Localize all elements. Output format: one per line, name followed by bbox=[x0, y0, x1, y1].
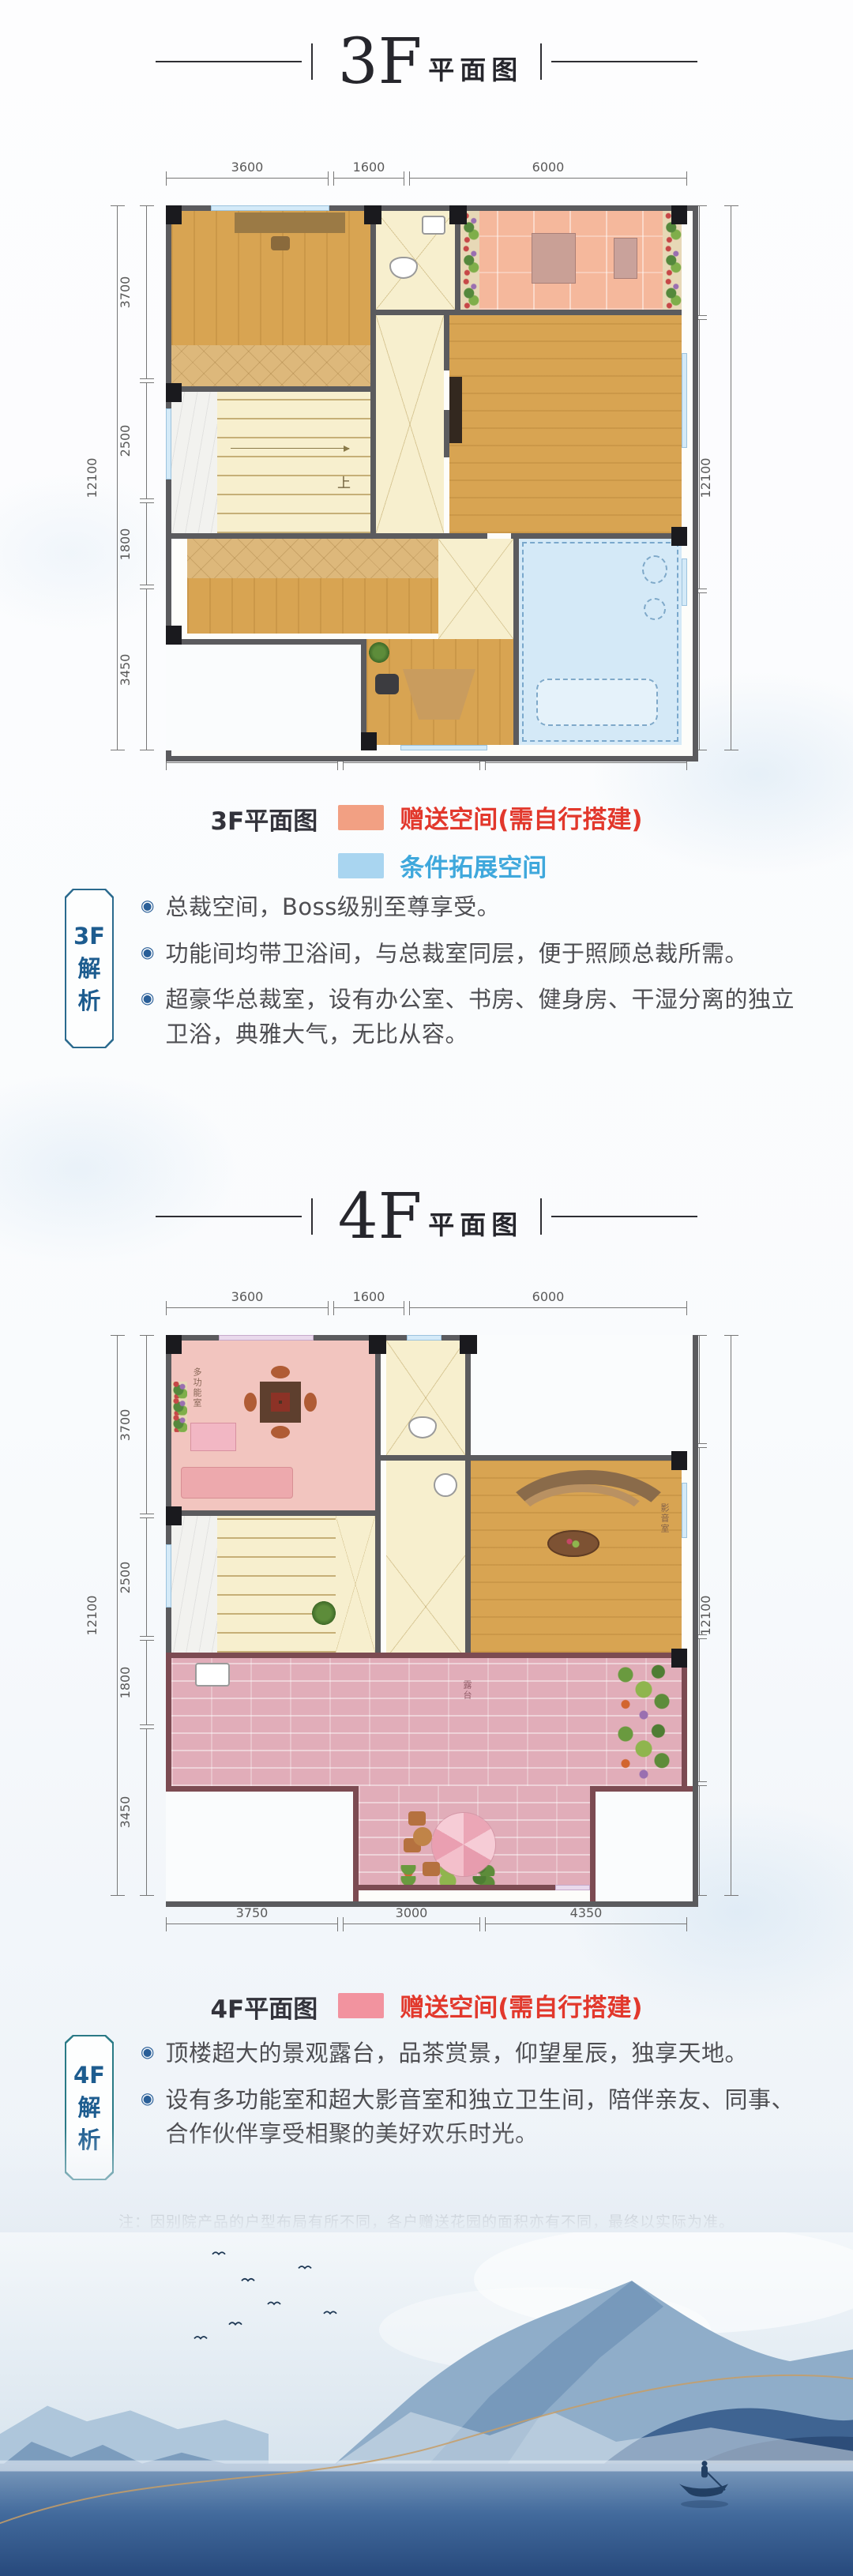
stair-landing-marble bbox=[171, 1516, 217, 1653]
wall bbox=[381, 1455, 465, 1461]
column bbox=[671, 527, 687, 546]
dim-top-6000: 6000 bbox=[409, 178, 687, 179]
page: 3F 平面图 3600 1600 6000 3750 3000 4350 370… bbox=[0, 0, 853, 2576]
room-master bbox=[449, 315, 682, 533]
floor4-title: 4F 平面图 bbox=[0, 1175, 853, 1258]
dim-top-1600: 1600 bbox=[333, 178, 404, 179]
wall bbox=[370, 211, 376, 392]
plant-icon bbox=[312, 1601, 336, 1625]
stairs bbox=[217, 1516, 336, 1653]
column bbox=[671, 205, 687, 224]
column bbox=[166, 205, 182, 224]
dim-top-3600: 3600 bbox=[166, 1307, 329, 1308]
gift-space-swatch bbox=[338, 1993, 384, 2018]
stair-up-label: 上 bbox=[337, 472, 351, 491]
title-tick bbox=[311, 1198, 313, 1235]
column bbox=[166, 626, 182, 645]
dim-left-total-12100: 12100 bbox=[117, 1335, 118, 1896]
floor3-analysis-tag: 3F 解 析 bbox=[65, 889, 114, 1048]
dim-left-1800: 1800 bbox=[146, 502, 147, 585]
window-icon bbox=[219, 1335, 314, 1341]
dim-bottom-3000: 3000 bbox=[343, 762, 480, 763]
dim-left-3450: 3450 bbox=[146, 1728, 147, 1896]
dim-left-1800: 1800 bbox=[146, 1640, 147, 1725]
corridor bbox=[386, 1555, 465, 1658]
dim-right-2400: 2400 bbox=[699, 1785, 700, 1896]
chair-icon bbox=[408, 1811, 426, 1826]
legend-item-gift: 赠送空间(需自行搭建) bbox=[338, 1987, 642, 2023]
flower-strip-icon bbox=[171, 1382, 187, 1432]
bullet-item: ◉ 顶楼超大的景观露台，品茶赏景，仰望星辰，独享天地。 bbox=[141, 2036, 797, 2071]
closet bbox=[171, 345, 370, 386]
window-icon bbox=[555, 1885, 590, 1890]
garden-icon bbox=[607, 1663, 680, 1781]
column bbox=[364, 205, 381, 224]
floor4-legend: 4F平面图 赠送空间(需自行搭建) bbox=[0, 1987, 853, 2025]
column bbox=[671, 1649, 687, 1668]
chair-icon bbox=[271, 1426, 290, 1438]
flower-strip-icon bbox=[460, 211, 479, 310]
title-rule bbox=[156, 1216, 302, 1217]
column bbox=[166, 1335, 182, 1354]
title-tick bbox=[540, 43, 542, 80]
floor3-legend: 3F平面图 赠送空间(需自行搭建) 条件拓展空间 bbox=[0, 799, 853, 883]
dim-right-2350: 2350 bbox=[699, 205, 700, 316]
column bbox=[166, 1506, 182, 1525]
terrace bbox=[171, 1658, 682, 1786]
bathtub-icon bbox=[536, 679, 658, 726]
closet-band bbox=[187, 539, 438, 578]
flower-strip-icon bbox=[663, 211, 682, 310]
building-cutout bbox=[590, 1786, 693, 1901]
chair-icon bbox=[423, 1862, 440, 1876]
gift-space-label: 赠送空间(需自行搭建) bbox=[400, 1987, 642, 2023]
terrace-wall bbox=[166, 1653, 171, 1792]
expand-space-label: 条件拓展空间 bbox=[400, 848, 547, 883]
terrace-wall bbox=[171, 1653, 687, 1658]
dim-right-total-12100: 12100 bbox=[731, 1335, 731, 1896]
corridor bbox=[376, 315, 444, 533]
artwork-fade bbox=[0, 2128, 853, 2234]
floor3-analysis: 3F 解 析 ◉ 总裁空间，Boss级别至尊享受。 ◉ 功能间均带卫浴间，与总裁… bbox=[65, 889, 803, 1051]
bullet-icon: ◉ bbox=[141, 937, 154, 972]
washroom bbox=[386, 1461, 465, 1555]
wall bbox=[511, 533, 682, 539]
dim-right-total-12100: 12100 bbox=[731, 205, 731, 750]
title-rule bbox=[551, 61, 697, 62]
toilet-icon bbox=[642, 555, 667, 584]
flower-decor-icon bbox=[565, 1536, 581, 1549]
floor3-floorplan: 上 bbox=[166, 205, 698, 762]
expand-space-swatch bbox=[338, 853, 384, 878]
dim-right-3100: 3100 bbox=[699, 1638, 700, 1782]
dim-left-2500: 2500 bbox=[146, 1517, 147, 1637]
dim-left-total-12100: 12100 bbox=[117, 205, 118, 750]
wall bbox=[465, 1341, 471, 1658]
stair-landing-marble bbox=[171, 392, 217, 533]
dim-left-3700: 3700 bbox=[146, 205, 147, 379]
dim-top-3600: 3600 bbox=[166, 178, 329, 179]
title-tick bbox=[311, 43, 313, 80]
wardrobe-icon bbox=[449, 377, 462, 443]
dim-bottom-4350: 4350 bbox=[485, 762, 687, 763]
dim-top-1600: 1600 bbox=[333, 1307, 404, 1308]
stairs bbox=[217, 392, 370, 533]
gift-space-swatch bbox=[338, 805, 384, 830]
dim-right-5800: 5800 bbox=[699, 319, 700, 589]
bullet-item: ◉ 总裁空间，Boss级别至尊享受。 bbox=[141, 890, 797, 925]
chair-icon bbox=[271, 236, 290, 250]
wall bbox=[513, 539, 519, 745]
floor3-plan-block: 3600 1600 6000 3750 3000 4350 3700 2500 … bbox=[0, 150, 853, 806]
floor3-legend-name: 3F平面图 bbox=[210, 799, 318, 883]
floor3-title-small: 平面图 bbox=[428, 36, 523, 87]
bullet-item: ◉ 功能间均带卫浴间，与总裁室同层，便于照顾总裁所需。 bbox=[141, 937, 797, 972]
column bbox=[361, 732, 377, 750]
floor4-title-small: 平面图 bbox=[428, 1191, 523, 1242]
building-cutout bbox=[166, 1786, 359, 1901]
dim-top-6000: 6000 bbox=[409, 1307, 687, 1308]
sofa-icon bbox=[181, 1467, 293, 1499]
wall bbox=[171, 1510, 375, 1516]
column bbox=[460, 1335, 477, 1354]
bullet-item: ◉ 超豪华总裁室，设有办公室、书房、健身房、干湿分离的独立卫浴，典雅大气，无比从… bbox=[141, 983, 797, 1051]
bullet-icon: ◉ bbox=[141, 983, 154, 1051]
floor4-title-big: 4F bbox=[338, 1188, 422, 1245]
hall bbox=[187, 578, 438, 634]
title-rule bbox=[156, 61, 302, 62]
chair-icon bbox=[271, 1366, 290, 1378]
dining-table-icon bbox=[260, 1382, 301, 1423]
window-icon bbox=[682, 558, 687, 606]
dim-bottom-4350: 4350 bbox=[485, 1924, 687, 1924]
column bbox=[369, 1335, 386, 1354]
landscape-artwork bbox=[0, 2232, 853, 2576]
floor3-title-big: 3F bbox=[338, 33, 422, 90]
hall-tile bbox=[336, 1516, 375, 1653]
legend-item-expand: 条件拓展空间 bbox=[338, 848, 642, 883]
room-multifunction-label: 多功能室 bbox=[190, 1367, 203, 1408]
terrace-wall bbox=[682, 1653, 687, 1792]
plant-icon bbox=[369, 642, 389, 663]
title-tick bbox=[540, 1198, 542, 1235]
wall bbox=[376, 310, 682, 315]
sink-icon bbox=[644, 598, 666, 620]
wall bbox=[465, 1455, 687, 1461]
window-icon bbox=[166, 1544, 171, 1608]
building-cutout bbox=[471, 1335, 693, 1455]
umbrella-icon bbox=[432, 1813, 495, 1876]
dim-bottom-3750: 3750 bbox=[166, 762, 338, 763]
window-icon bbox=[407, 1335, 442, 1341]
floor4-plan-block: 3600 1600 6000 3750 3000 4350 3700 2500 … bbox=[0, 1280, 853, 1967]
hall-tile bbox=[438, 539, 513, 639]
table-icon bbox=[413, 1827, 432, 1846]
wall bbox=[370, 392, 376, 533]
floor4-legend-name: 4F平面图 bbox=[210, 1987, 318, 2025]
legend-item-gift: 赠送空间(需自行搭建) bbox=[338, 799, 642, 835]
gift-space-label: 赠送空间(需自行搭建) bbox=[400, 799, 642, 835]
tag-label: 3F 解 析 bbox=[66, 890, 112, 1047]
wall bbox=[444, 315, 449, 370]
terrace-label: 露台 bbox=[460, 1680, 473, 1701]
waterline-mist bbox=[0, 2461, 853, 2472]
bullet-icon: ◉ bbox=[141, 890, 154, 925]
chair-icon bbox=[244, 1393, 257, 1412]
desk-icon bbox=[235, 212, 345, 233]
floor3-title: 3F 平面图 bbox=[0, 21, 853, 103]
column bbox=[449, 205, 467, 224]
sink-icon bbox=[422, 216, 445, 235]
floor4-floorplan: 多功能室 影音室 bbox=[166, 1335, 698, 1907]
bullet-icon: ◉ bbox=[141, 2036, 154, 2071]
building-cutout bbox=[166, 639, 366, 750]
title-rule bbox=[551, 1216, 697, 1217]
window-icon bbox=[682, 1483, 687, 1538]
sink-icon bbox=[434, 1473, 457, 1497]
window-icon bbox=[400, 745, 487, 750]
dim-left-3700: 3700 bbox=[146, 1335, 147, 1514]
chair-icon bbox=[304, 1393, 317, 1412]
wall bbox=[171, 533, 487, 539]
dim-right-3450: 3450 bbox=[699, 592, 700, 750]
rug-icon bbox=[190, 1423, 236, 1451]
wall bbox=[444, 410, 449, 457]
floor3-analysis-bullets: ◉ 总裁空间，Boss级别至尊享受。 ◉ 功能间均带卫浴间，与总裁室同层，便于照… bbox=[141, 889, 797, 1051]
massage-bed-icon bbox=[532, 233, 576, 284]
wall bbox=[171, 386, 370, 392]
fitness-chair-icon bbox=[614, 238, 637, 279]
window-icon bbox=[166, 408, 171, 479]
sink-icon bbox=[195, 1663, 230, 1687]
column bbox=[671, 1451, 687, 1470]
column bbox=[166, 383, 182, 402]
dim-left-2500: 2500 bbox=[146, 382, 147, 499]
wall bbox=[455, 211, 460, 315]
window-icon bbox=[682, 353, 687, 448]
dim-left-3450: 3450 bbox=[146, 589, 147, 750]
stair-direction-arrow-icon bbox=[231, 448, 349, 449]
office-chair-icon bbox=[375, 674, 399, 694]
wall bbox=[375, 1341, 381, 1658]
window-icon bbox=[211, 205, 329, 211]
dim-bottom-3000: 3000 bbox=[343, 1924, 480, 1924]
dim-bottom-3750: 3750 bbox=[166, 1924, 338, 1924]
water bbox=[0, 2464, 853, 2576]
dim-right-2350: 2350 bbox=[699, 1335, 700, 1444]
